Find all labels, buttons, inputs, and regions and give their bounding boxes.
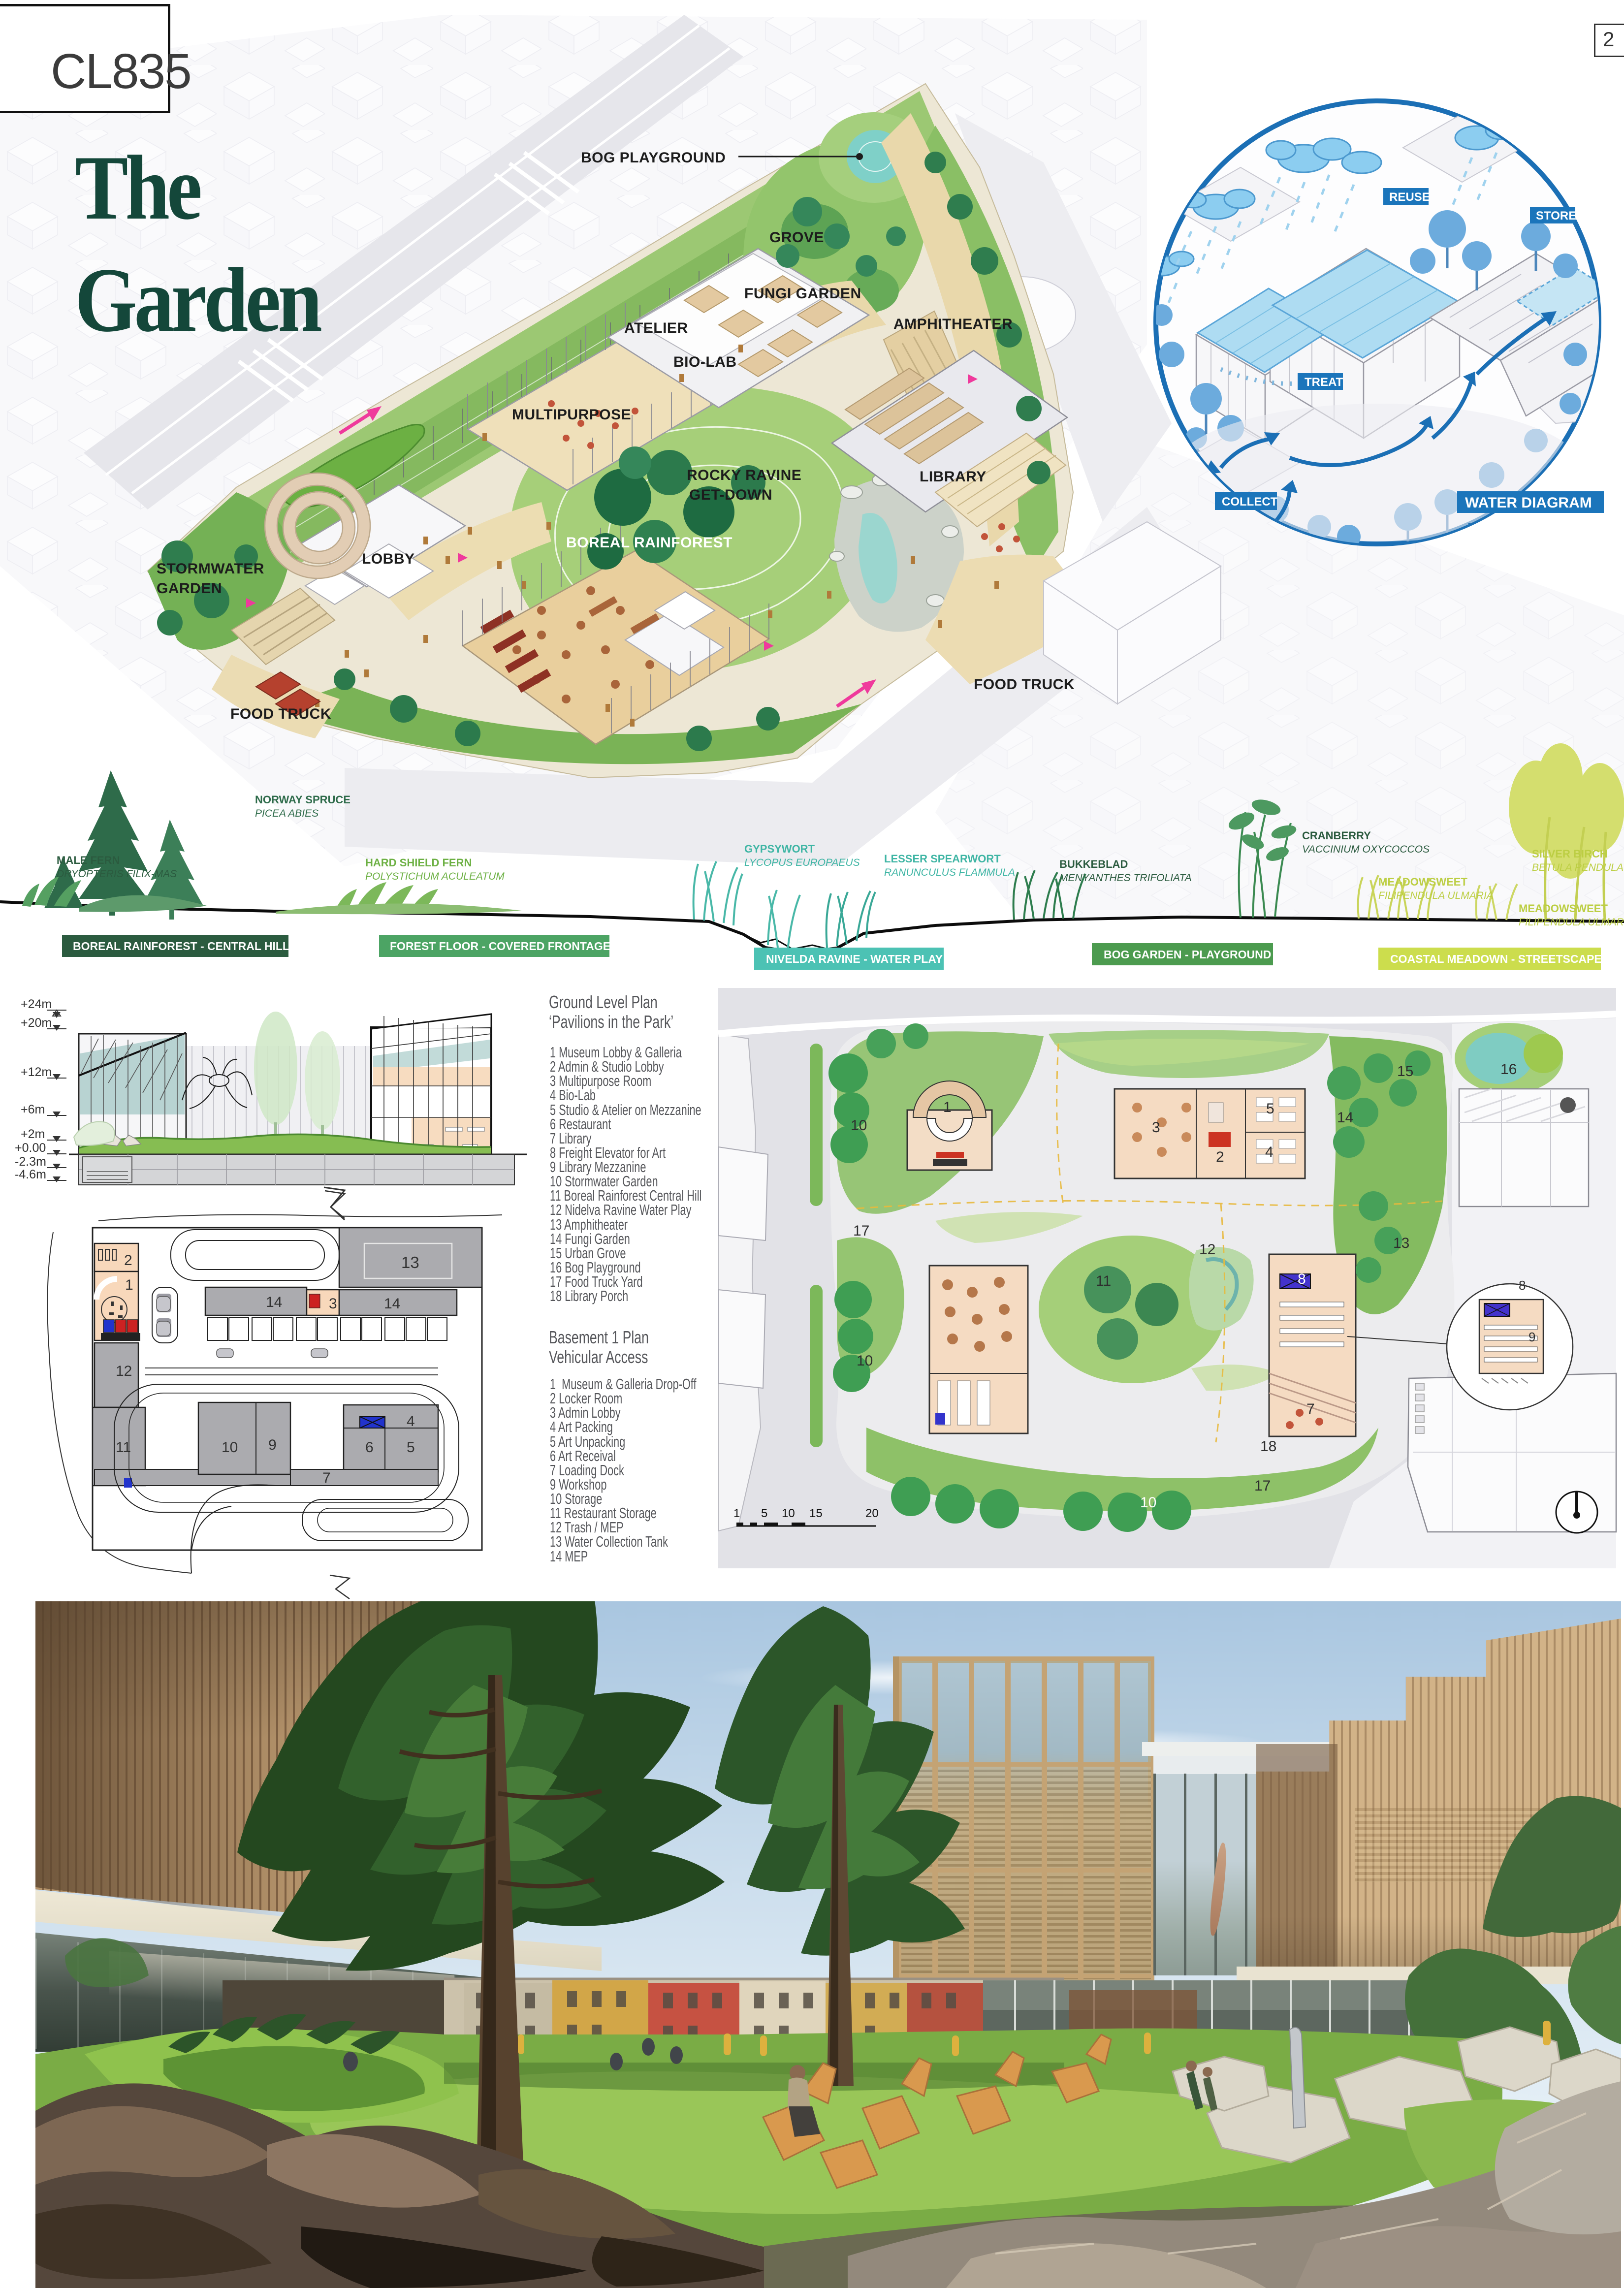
svg-text:7: 7 — [322, 1470, 331, 1486]
svg-text:8: 8 — [1519, 1278, 1526, 1293]
svg-text:BOREAL RAINFOREST - CENTRAL HI: BOREAL RAINFOREST - CENTRAL HILL — [73, 940, 289, 953]
svg-text:17: 17 — [1254, 1478, 1271, 1494]
svg-text:-4.6m: -4.6m — [15, 1168, 46, 1181]
svg-text:1: 1 — [943, 1099, 952, 1115]
svg-text:10: 10 — [1140, 1494, 1156, 1511]
svg-text:BETULA PENDULA: BETULA PENDULA — [1532, 862, 1624, 873]
svg-text:+6m: +6m — [21, 1103, 45, 1116]
svg-text:2: 2 — [124, 1252, 132, 1269]
svg-text:20: 20 — [865, 1507, 879, 1520]
svg-text:15: 15 — [809, 1507, 823, 1520]
svg-text:13: 13 — [1393, 1235, 1409, 1251]
svg-text:MULTIPURPOSE: MULTIPURPOSE — [512, 407, 631, 423]
svg-text:11: 11 — [1096, 1273, 1111, 1289]
svg-text:VACCINIUM OXYCOCCOS: VACCINIUM OXYCOCCOS — [1302, 844, 1430, 855]
svg-text:LIBRARY: LIBRARY — [920, 469, 987, 485]
svg-text:FOOD TRUCK: FOOD TRUCK — [974, 676, 1075, 693]
svg-text:18: 18 — [1260, 1438, 1276, 1455]
svg-text:+24m: +24m — [21, 997, 52, 1011]
svg-text:CRANBERRY: CRANBERRY — [1302, 829, 1371, 842]
svg-text:NORWAY SPRUCE: NORWAY SPRUCE — [255, 794, 350, 806]
svg-text:10: 10 — [851, 1117, 867, 1134]
svg-text:GROVE: GROVE — [769, 229, 824, 246]
svg-text:+0.00: +0.00 — [15, 1141, 46, 1155]
svg-text:MEADOWSWEET: MEADOWSWEET — [1519, 902, 1608, 915]
svg-text:HARD SHIELD FERN: HARD SHIELD FERN — [365, 857, 472, 869]
svg-text:2: 2 — [1216, 1149, 1224, 1165]
svg-text:COASTAL MEADOWN - STREETSCAPE: COASTAL MEADOWN - STREETSCAPE — [1390, 953, 1602, 965]
svg-text:13: 13 — [401, 1253, 419, 1271]
svg-text:3: 3 — [329, 1296, 337, 1312]
svg-text:BOG PLAYGROUND: BOG PLAYGROUND — [581, 150, 726, 166]
svg-text:GARDEN: GARDEN — [157, 580, 222, 597]
svg-text:5: 5 — [407, 1439, 415, 1456]
svg-text:12: 12 — [1199, 1241, 1215, 1258]
svg-text:NIVELDA RAVINE - WATER PLAY: NIVELDA RAVINE - WATER PLAY — [766, 953, 943, 965]
svg-text:BIO-LAB: BIO-LAB — [673, 354, 736, 370]
svg-text:17: 17 — [853, 1223, 869, 1239]
svg-text:3: 3 — [1152, 1119, 1160, 1136]
svg-text:15: 15 — [1397, 1063, 1413, 1080]
svg-text:9: 9 — [268, 1437, 277, 1453]
svg-text:ATELIER: ATELIER — [624, 320, 688, 336]
svg-text:LESSER SPEARWORT: LESSER SPEARWORT — [884, 853, 1001, 865]
svg-text:+20m: +20m — [21, 1016, 52, 1030]
svg-text:1: 1 — [125, 1277, 133, 1293]
svg-text:FILIPENDULA ULMARIA: FILIPENDULA ULMARIA — [1519, 917, 1624, 928]
svg-text:8: 8 — [1298, 1271, 1306, 1287]
svg-text:FUNGI GARDEN: FUNGI GARDEN — [744, 286, 861, 302]
svg-text:5: 5 — [1266, 1101, 1274, 1117]
svg-text:9: 9 — [1528, 1330, 1535, 1344]
svg-text:10: 10 — [857, 1353, 873, 1369]
svg-text:RANUNCULUS FLAMMULA: RANUNCULUS FLAMMULA — [884, 867, 1015, 878]
svg-text:+12m: +12m — [21, 1065, 52, 1079]
svg-text:MEADOWSWEET: MEADOWSWEET — [1378, 876, 1467, 888]
svg-text:14: 14 — [1337, 1110, 1353, 1126]
svg-text:LYCOPUS EUROPAEUS: LYCOPUS EUROPAEUS — [744, 857, 860, 868]
svg-text:12: 12 — [116, 1363, 132, 1379]
svg-text:DRYOPTERIS FILIX-MAS: DRYOPTERIS FILIX-MAS — [57, 868, 177, 880]
svg-text:COLLECT: COLLECT — [1222, 495, 1278, 508]
svg-text:10: 10 — [222, 1439, 238, 1456]
svg-text:STORE: STORE — [1536, 209, 1576, 222]
svg-text:STORMWATER: STORMWATER — [157, 561, 264, 577]
svg-text:BOREAL RAINFOREST: BOREAL RAINFOREST — [566, 535, 732, 551]
svg-text:MENYANTHES TRIFOLIATA: MENYANTHES TRIFOLIATA — [1059, 872, 1192, 884]
svg-text:4: 4 — [407, 1413, 415, 1430]
svg-text:4: 4 — [1265, 1144, 1274, 1160]
svg-text:SILVER BIRCH: SILVER BIRCH — [1532, 848, 1608, 860]
svg-text:6: 6 — [365, 1439, 374, 1456]
svg-text:GYPSYWORT: GYPSYWORT — [744, 843, 815, 855]
svg-text:MALE FERN: MALE FERN — [57, 854, 120, 866]
svg-text:BUKKEBLAD: BUKKEBLAD — [1059, 858, 1128, 870]
svg-text:POLYSTICHUM ACULEATUM: POLYSTICHUM ACULEATUM — [365, 871, 505, 882]
svg-text:1: 1 — [733, 1507, 740, 1520]
svg-text:FILIPENDULA ULMARIA: FILIPENDULA ULMARIA — [1378, 890, 1494, 901]
svg-text:14: 14 — [384, 1296, 400, 1312]
svg-text:16: 16 — [1500, 1061, 1517, 1078]
svg-text:LOBBY: LOBBY — [362, 551, 415, 567]
svg-text:WATER DIAGRAM: WATER DIAGRAM — [1465, 495, 1592, 511]
svg-text:GET-DOWN: GET-DOWN — [689, 487, 772, 503]
svg-text:BOG GARDEN - PLAYGROUND: BOG GARDEN - PLAYGROUND — [1104, 948, 1271, 961]
svg-text:REUSE: REUSE — [1389, 191, 1430, 204]
svg-text:10: 10 — [782, 1507, 795, 1520]
svg-text:7: 7 — [1306, 1401, 1315, 1417]
svg-text:AMPHITHEATER: AMPHITHEATER — [893, 316, 1013, 332]
svg-text:-2.3m: -2.3m — [15, 1155, 46, 1169]
svg-text:TREAT: TREAT — [1305, 376, 1343, 389]
svg-text:FOREST FLOOR - COVERED FRONTAG: FOREST FLOOR - COVERED FRONTAGE — [390, 940, 610, 953]
svg-text:ROCKY RAVINE: ROCKY RAVINE — [687, 467, 801, 483]
svg-text:PICEA ABIES: PICEA ABIES — [255, 808, 318, 819]
svg-text:5: 5 — [761, 1507, 767, 1520]
svg-text:14: 14 — [266, 1294, 282, 1310]
svg-text:+2m: +2m — [21, 1127, 45, 1141]
